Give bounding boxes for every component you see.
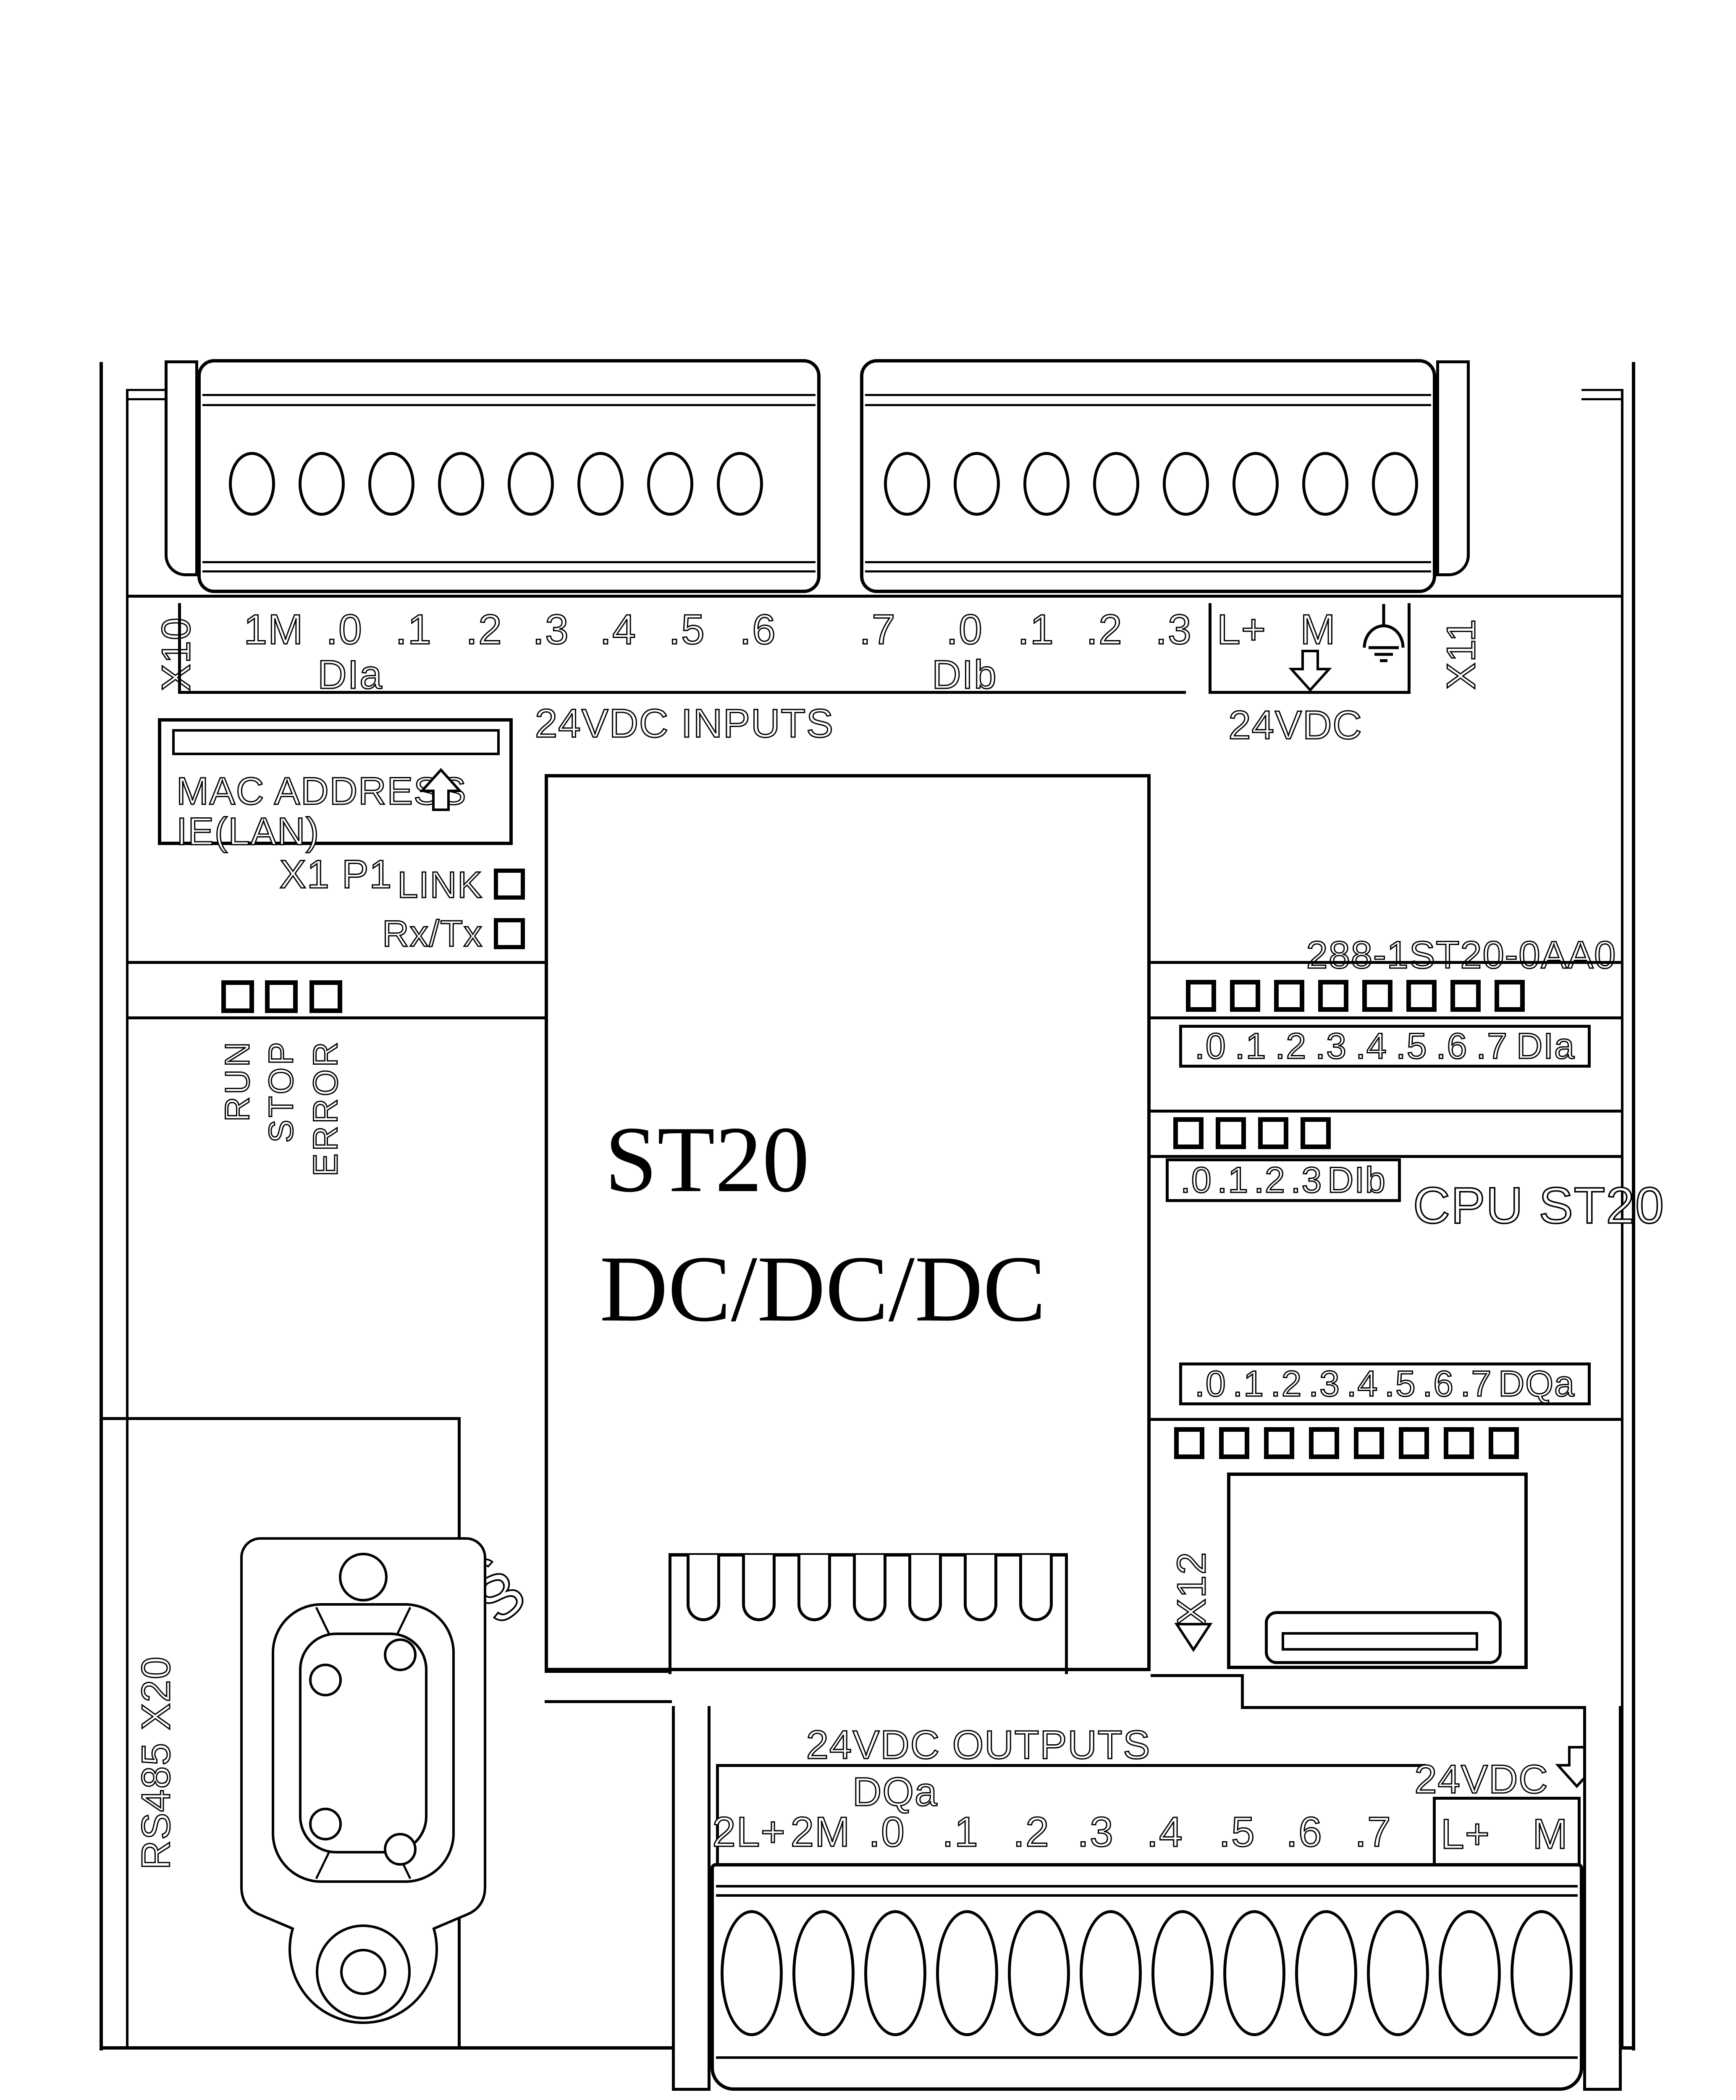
block-right-line-3 — [865, 561, 1431, 563]
terminal-finger-slot — [853, 1555, 886, 1621]
terminal-finger-slot — [797, 1555, 831, 1621]
input-group-label-dia: DIa — [315, 652, 386, 698]
dib-led — [1258, 1117, 1288, 1149]
dia-bit-label: .0 — [1195, 1026, 1227, 1067]
mac-address-window — [172, 729, 500, 755]
input-terminal-label: .0 — [929, 606, 1000, 654]
screw-terminal[interactable] — [1023, 452, 1070, 516]
input-terminal-label: .3 — [1138, 606, 1209, 654]
band-line — [1151, 1110, 1622, 1113]
terminal-finger-slot — [687, 1555, 720, 1621]
dib-bit-label: .3 — [1291, 1160, 1323, 1201]
screw-terminal[interactable] — [1295, 1910, 1357, 2036]
band-line — [1151, 1155, 1622, 1158]
dia-bit-label: .7 — [1476, 1026, 1508, 1067]
dqa-bit-label: .0 — [1195, 1363, 1227, 1405]
dib-led — [1216, 1117, 1246, 1149]
dia-led — [1318, 980, 1348, 1012]
dib-bit-label: .0 — [1180, 1160, 1212, 1201]
output-terminal-label: .5 — [1201, 1808, 1273, 1856]
divider-line — [1151, 1674, 1241, 1677]
dqa-label-box: .0 .1 .2 .3 .4 .5 .6 .7 DQa — [1179, 1362, 1591, 1405]
block-bottom-line-3 — [716, 2056, 1578, 2059]
dia-bit-label: .2 — [1275, 1026, 1307, 1067]
output-terminal-label: .1 — [925, 1808, 996, 1856]
rail-left — [672, 1706, 711, 2091]
screw-terminal[interactable] — [936, 1910, 998, 2036]
dia-led — [1450, 980, 1481, 1012]
output-bracket-line — [716, 1764, 1426, 1767]
dqa-bit-label: .2 — [1271, 1363, 1303, 1405]
input-group-label-dib: DIb — [929, 652, 1000, 698]
dqa-bit-label: .5 — [1385, 1363, 1416, 1405]
block-left-line-4 — [202, 570, 816, 572]
rs485-panel-top — [103, 1417, 460, 1420]
block-right-line-4 — [865, 570, 1431, 572]
model-name: ST20 — [605, 1105, 810, 1214]
dqa-led — [1264, 1427, 1294, 1459]
dqa-bit-label: .6 — [1422, 1363, 1454, 1405]
run-led-label: RUN — [218, 1039, 257, 1266]
output-terminal-label: .4 — [1129, 1808, 1201, 1856]
dib-led — [1173, 1117, 1204, 1149]
din-ear-left — [165, 360, 198, 576]
rs485-port-label: RS485 X20 — [133, 1645, 179, 1880]
output-power-terminal: M — [1515, 1810, 1586, 1858]
frame-bottom-left — [100, 2046, 672, 2050]
band-line — [1151, 1418, 1622, 1421]
screw-terminal[interactable] — [1439, 1910, 1501, 2036]
input-heading: 24VDC INPUTS — [517, 701, 852, 747]
screw-terminal[interactable] — [1151, 1910, 1214, 2036]
plc-wiring-diagram: X10 X11 1M .0 .1 .2 .3 .4 .5 .6 DIa .7 .… — [0, 0, 1736, 2100]
dqa-led — [1444, 1427, 1474, 1459]
rxtx-led-label: Rx/Tx — [378, 912, 483, 955]
block-right-line-1 — [865, 394, 1431, 396]
dia-bit-label: .4 — [1356, 1026, 1387, 1067]
block-left-line-2 — [202, 404, 816, 406]
screw-terminal[interactable] — [792, 1910, 855, 2036]
terminal-finger-slot — [964, 1555, 997, 1621]
dqa-led — [1354, 1427, 1384, 1459]
dqa-led — [1174, 1427, 1204, 1459]
link-led-label: LINK — [378, 864, 483, 906]
input-terminal-label: .0 — [309, 606, 380, 654]
connector-label-x11: X11 — [1438, 604, 1484, 704]
input-terminal-label: .1 — [1000, 606, 1072, 654]
dia-label-box: .0 .1 .2 .3 .4 .5 .6 .7 DIa — [1179, 1025, 1591, 1068]
rail-right — [1583, 1706, 1622, 2091]
din-ear-right — [1436, 360, 1470, 576]
band-line — [1151, 1016, 1622, 1019]
screw-terminal[interactable] — [1233, 452, 1279, 516]
band-line — [1151, 961, 1622, 964]
input-terminal-label: .2 — [1069, 606, 1140, 654]
dqa-led — [1489, 1427, 1519, 1459]
cpu-body-outline — [545, 774, 1151, 1671]
connector-label-x10: X10 — [153, 604, 199, 704]
cpu-label: CPU ST20 — [1413, 1176, 1665, 1235]
screw-terminal[interactable] — [368, 452, 414, 516]
screw-terminal[interactable] — [1008, 1910, 1070, 2036]
triangle-marker-icon — [1174, 1622, 1213, 1652]
dib-group-label: DIb — [1327, 1160, 1386, 1201]
dqa-bit-label: .7 — [1461, 1363, 1492, 1405]
terminal-finger-slot — [908, 1555, 942, 1621]
screw-terminal[interactable] — [1372, 452, 1418, 516]
screw-terminal[interactable] — [1510, 1910, 1573, 2036]
dia-led — [1495, 980, 1525, 1012]
dia-led — [1274, 980, 1304, 1012]
terminal-finger-slot — [742, 1555, 776, 1621]
dib-label-box: .0 .1 .2 .3 DIb — [1166, 1158, 1401, 1202]
output-power-box-top — [1433, 1797, 1581, 1800]
card-slot-inner — [1282, 1632, 1478, 1651]
error-led-label: ERROR — [306, 1039, 346, 1266]
dia-bit-label: .1 — [1235, 1026, 1267, 1067]
output-terminal-label: 2L+ — [711, 1808, 787, 1856]
screw-terminal[interactable] — [1367, 1910, 1429, 2036]
input-terminal-label: .1 — [378, 606, 449, 654]
divider-line — [545, 1670, 670, 1673]
mac-lan-label: IE(LAN) — [176, 810, 320, 854]
screw-terminal[interactable] — [721, 1910, 783, 2036]
screw-terminal[interactable] — [299, 452, 345, 516]
input-terminal-label: .7 — [842, 606, 913, 654]
divider-line — [1241, 1674, 1244, 1709]
block-bottom-line-2 — [716, 1894, 1578, 1897]
stop-led-label: STOP — [262, 1039, 301, 1266]
screw-terminal[interactable] — [577, 452, 624, 516]
band-line — [128, 1016, 545, 1019]
band-line — [128, 961, 545, 964]
dqa-group-label: DQa — [1498, 1363, 1575, 1405]
screw-terminal[interactable] — [1080, 1910, 1142, 2036]
input-power-terminal: L+ — [1206, 606, 1277, 654]
error-led — [309, 980, 342, 1013]
dia-led — [1362, 980, 1392, 1012]
block-right-line-2 — [865, 404, 1431, 406]
screw-terminal[interactable] — [1163, 452, 1209, 516]
frame-left-inner — [126, 389, 128, 2049]
down-arrow-icon — [1287, 650, 1333, 692]
input-terminal-label: .3 — [515, 606, 587, 654]
input-power-terminal: M — [1282, 606, 1354, 654]
screw-terminal[interactable] — [884, 452, 930, 516]
screw-terminal[interactable] — [954, 452, 1000, 516]
divider-line — [1241, 1706, 1622, 1709]
block-left-line-1 — [202, 394, 816, 396]
frame-notch-right-a — [1581, 389, 1622, 391]
input-terminal-label: 1M — [238, 606, 309, 654]
dib-bit-label: .2 — [1254, 1160, 1286, 1201]
article-number: 288-1ST20-0AA0 — [1293, 933, 1629, 977]
screw-terminal[interactable] — [717, 452, 763, 516]
dia-bit-label: .5 — [1396, 1026, 1428, 1067]
output-terminal-label: .2 — [996, 1808, 1067, 1856]
dib-bit-label: .1 — [1217, 1160, 1249, 1201]
run-led — [221, 980, 254, 1013]
earth-ground-icon — [1358, 603, 1409, 663]
output-terminal-label: .7 — [1337, 1808, 1409, 1856]
input-power-label: 24VDC — [1170, 702, 1421, 748]
block-bottom-line-1 — [716, 1885, 1578, 1887]
stop-led — [265, 980, 298, 1013]
link-led — [494, 869, 525, 900]
face-top-line — [126, 595, 1623, 598]
model-power-type: DC/DC/DC — [600, 1234, 1046, 1343]
block-left-line-3 — [202, 561, 816, 563]
screw-terminal[interactable] — [438, 452, 484, 516]
dia-led — [1230, 980, 1260, 1012]
db9-connector[interactable] — [237, 1535, 489, 2037]
shroud-side — [1065, 1553, 1068, 1674]
input-bracket-tick — [178, 603, 181, 694]
dia-led — [1186, 980, 1216, 1012]
dib-led — [1301, 1117, 1331, 1149]
frame-left-outer — [100, 362, 103, 2050]
dia-group-label: DIa — [1516, 1026, 1575, 1067]
rxtx-led — [494, 918, 525, 949]
screw-terminal[interactable] — [864, 1910, 926, 2036]
output-heading: 24VDC OUTPUTS — [789, 1722, 1167, 1768]
screw-terminal[interactable] — [647, 452, 693, 516]
output-terminal-label: .0 — [851, 1808, 923, 1856]
dia-bit-label: .6 — [1436, 1026, 1468, 1067]
output-power-terminal: L+ — [1430, 1810, 1501, 1858]
up-arrow-icon — [418, 768, 464, 812]
input-terminal-label: .5 — [651, 606, 723, 654]
dqa-bit-label: .1 — [1233, 1363, 1264, 1405]
dqa-bit-label: .3 — [1309, 1363, 1340, 1405]
terminal-finger-slot — [1019, 1555, 1053, 1621]
dia-bit-label: .3 — [1315, 1026, 1347, 1067]
dqa-led — [1219, 1427, 1249, 1459]
input-terminal-label: .6 — [722, 606, 794, 654]
screw-terminal[interactable] — [229, 452, 275, 516]
shroud-side — [669, 1553, 671, 1674]
frame-notch-right-b — [1581, 398, 1622, 400]
dqa-led — [1309, 1427, 1339, 1459]
frame-notch-left-a — [126, 389, 166, 391]
frame-notch-left-b — [126, 398, 166, 400]
dia-led — [1406, 980, 1437, 1012]
dqa-led — [1399, 1427, 1429, 1459]
input-terminal-label: .4 — [582, 606, 654, 654]
divider-line — [545, 1700, 672, 1703]
input-terminal-label: .2 — [448, 606, 520, 654]
output-terminal-label: 2M — [783, 1808, 858, 1856]
screw-terminal[interactable] — [1093, 452, 1139, 516]
screw-terminal[interactable] — [1302, 452, 1348, 516]
dqa-bit-label: .4 — [1347, 1363, 1379, 1405]
output-terminal-label: .3 — [1060, 1808, 1131, 1856]
screw-terminal[interactable] — [1223, 1910, 1285, 2036]
output-terminal-label: .6 — [1269, 1808, 1340, 1856]
screw-terminal[interactable] — [508, 452, 554, 516]
